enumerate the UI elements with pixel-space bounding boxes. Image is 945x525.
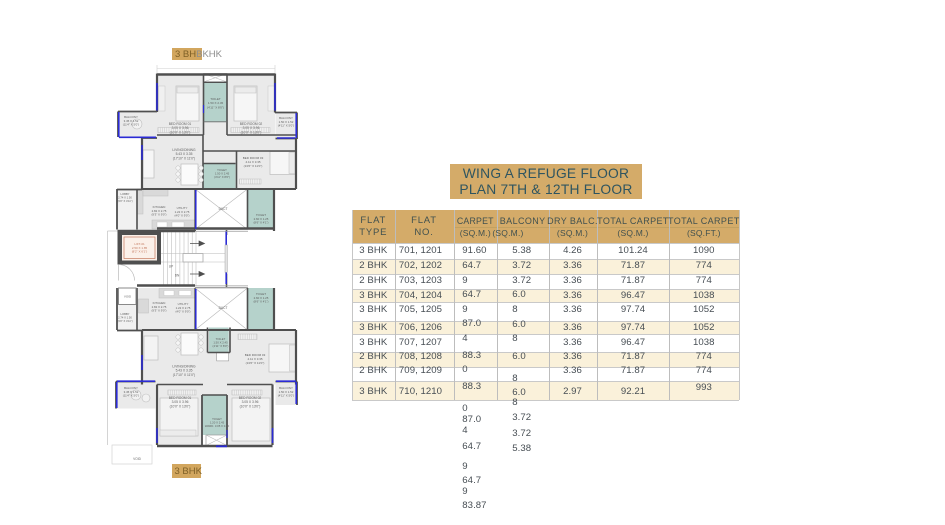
svg-text:(8'2" X 6'1"): (8'2" X 6'1") — [132, 250, 148, 254]
svg-text:(4'0" X 9'0"): (4'0" X 9'0") — [175, 310, 190, 314]
svg-text:(17'10" X 11'0"): (17'10" X 11'0") — [173, 156, 195, 160]
svg-text:WARD. 3.05 X 0.60: WARD. 3.05 X 0.60 — [205, 424, 230, 428]
svg-text:UP: UP — [169, 265, 173, 269]
svg-text:(13'6" X 11'0"): (13'6" X 11'0") — [244, 164, 263, 168]
svg-text:(11'4" X 5'0"): (11'4" X 5'0") — [123, 394, 139, 398]
svg-text:(9'3" X 9'0"): (9'3" X 9'0") — [151, 213, 166, 217]
svg-text:LOBBY: LOBBY — [121, 192, 130, 196]
svg-text:(4'0" X 9'0"): (4'0" X 9'0") — [174, 214, 189, 218]
svg-text:DN: DN — [175, 274, 180, 278]
svg-text:2.74 X 1.50: 2.74 X 1.50 — [118, 316, 132, 320]
svg-text:VOID: VOID — [133, 457, 141, 461]
svg-text:DUCT: DUCT — [219, 306, 228, 310]
svg-text:DUCT: DUCT — [219, 207, 228, 211]
svg-text:(4'11" X 5'0"): (4'11" X 5'0") — [278, 124, 294, 128]
svg-text:(13'6" X 11'0"): (13'6" X 11'0") — [246, 361, 265, 365]
svg-text:(4'11" X 8'0"): (4'11" X 8'0") — [214, 175, 230, 179]
svg-text:(10'0" X 13'0"): (10'0" X 13'0") — [170, 404, 191, 408]
svg-text:(4'11" X 8'0"): (4'11" X 8'0") — [207, 105, 224, 109]
svg-text:(9'0" X 4'11"): (9'0" X 4'11") — [117, 199, 132, 203]
svg-text:(9'0" X 4'11"): (9'0" X 4'11") — [117, 319, 132, 323]
svg-text:2.74 X 1.50: 2.74 X 1.50 — [118, 196, 132, 200]
svg-text:(4'11" X 8'0"): (4'11" X 8'0") — [213, 344, 229, 348]
svg-text:(4'11" X 5'0"): (4'11" X 5'0") — [278, 394, 294, 398]
svg-text:(10'0" X 13'0"): (10'0" X 13'0") — [240, 404, 261, 408]
svg-text:LOBBY: LOBBY — [121, 312, 130, 316]
svg-text:(8'6" X 4'1"): (8'6" X 4'1") — [253, 221, 268, 225]
svg-text:(17'10" X 11'0"): (17'10" X 11'0") — [173, 373, 195, 377]
svg-text:VOID: VOID — [124, 295, 132, 299]
svg-text:(11'4" X 5'0"): (11'4" X 5'0") — [123, 123, 139, 127]
svg-text:(9'3" X 9'0"): (9'3" X 9'0") — [151, 309, 166, 313]
svg-text:(8'6" X 4'1"): (8'6" X 4'1") — [253, 300, 268, 304]
